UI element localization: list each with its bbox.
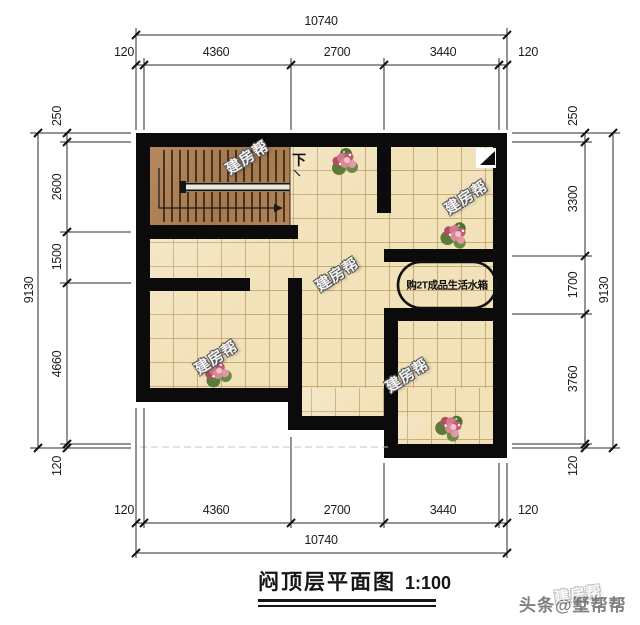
dimension-label: 3440 [430,503,457,517]
stair-down-label: 下 [292,150,306,170]
dimension-label: 10740 [304,14,337,28]
plant-icon [438,217,473,252]
dimension-label: 250 [50,106,64,126]
dimension-label: 9130 [22,277,36,304]
dimension-label: 120 [518,503,538,517]
dimension-ticks [34,31,617,557]
plan-linework [0,0,640,625]
dimension-label: 9130 [597,277,611,304]
floor-plan-canvas: 下 购2T成品生活水箱 1204360270034401201074012043… [0,0,640,625]
dimension-label: 4360 [203,503,230,517]
dimension-label: 2600 [50,174,64,201]
dimension-label: 4360 [203,45,230,59]
title-underline [258,599,436,602]
stair-handrail [180,181,290,193]
plant-icon [332,148,358,175]
water-tank-label: 购2T成品生活水箱 [399,278,495,293]
dimension-label: 3440 [430,45,457,59]
drawing-title-text: 闷顶层平面图 [258,571,396,594]
dimension-label: 3760 [566,366,580,393]
dimension-label: 120 [566,456,580,476]
dimension-label: 120 [50,456,64,476]
dimension-label: 4660 [50,351,64,378]
plant-icon [432,408,469,445]
drawing-scale: 1:100 [405,573,451,593]
dimension-label: 120 [518,45,538,59]
corner-hatch-icon [476,148,496,168]
dimension-label: 120 [114,45,134,59]
dimension-label: 2700 [324,503,351,517]
dimension-label: 10740 [304,533,337,547]
dimension-label: 1500 [50,244,64,271]
title-underline [258,605,436,607]
dimension-label: 120 [114,503,134,517]
dimension-label: 2700 [324,45,351,59]
dimension-label: 1700 [566,272,580,299]
dimension-label: 3300 [566,186,580,213]
dimension-label: 250 [566,106,580,126]
drawing-title: 闷顶层平面图1:100 [258,566,451,596]
